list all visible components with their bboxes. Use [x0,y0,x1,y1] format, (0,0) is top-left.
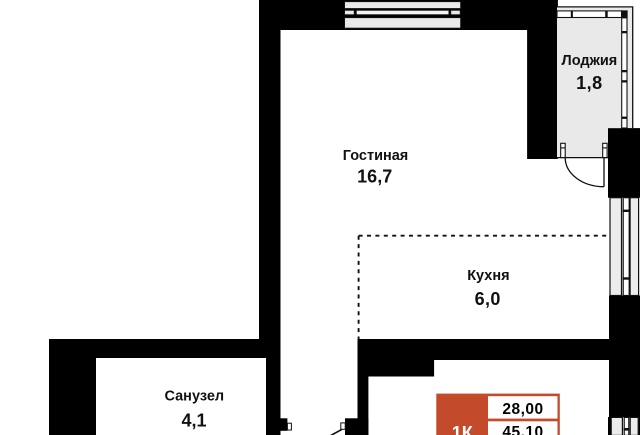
svg-text:Гостиная: Гостиная [343,148,409,164]
svg-text:1,8: 1,8 [576,73,603,93]
svg-text:28,00: 28,00 [502,401,543,418]
svg-text:6,0: 6,0 [475,289,501,309]
svg-text:Лоджия: Лоджия [562,53,618,69]
svg-text:45,10: 45,10 [502,424,543,435]
svg-text:4,1: 4,1 [181,410,206,430]
svg-text:16,7: 16,7 [357,166,392,186]
svg-text:Кухня: Кухня [467,268,509,284]
svg-text:Санузел: Санузел [164,389,224,405]
svg-text:1К: 1К [452,423,474,435]
